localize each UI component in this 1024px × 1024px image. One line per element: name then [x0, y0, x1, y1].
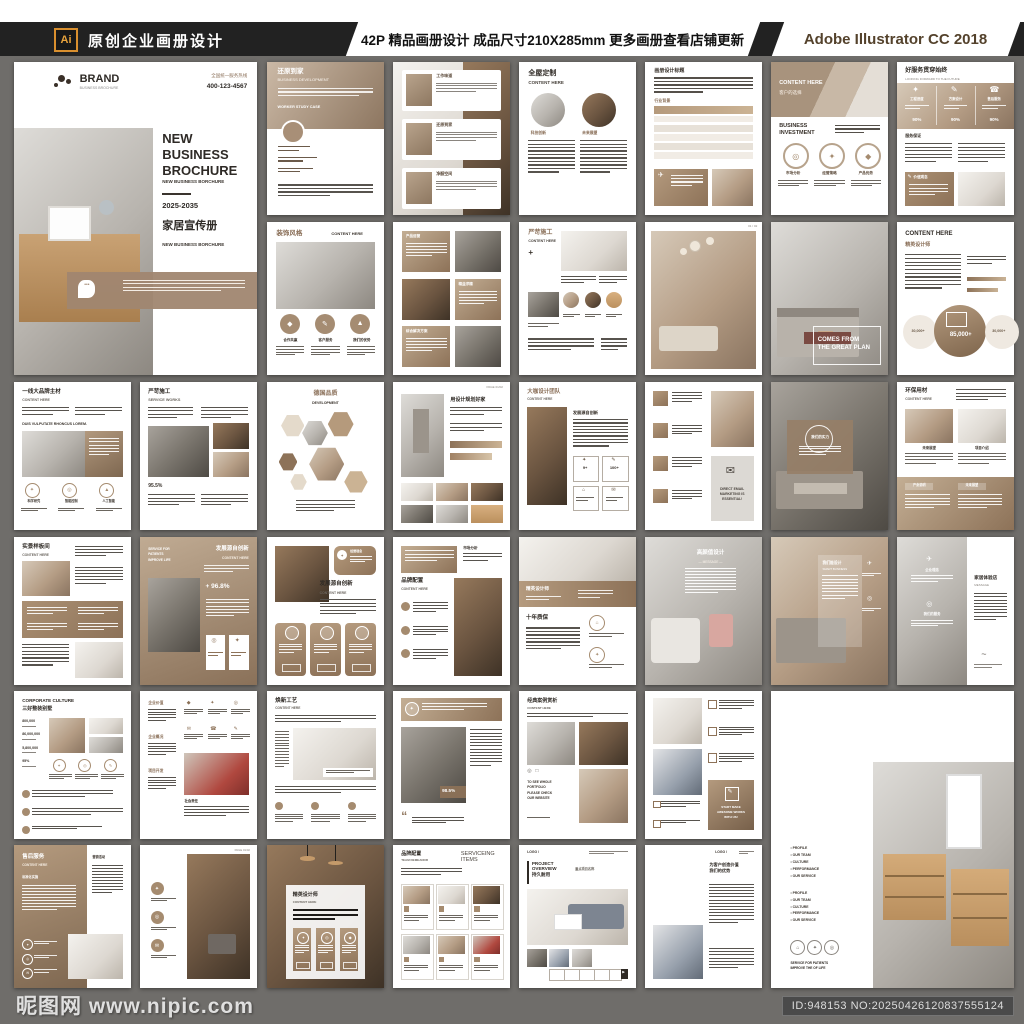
stat-value: 98.5%	[442, 788, 465, 794]
text-lines-placeholder	[208, 652, 223, 657]
text-label: SERVICE FOR PATIENTS IMPROVE THE OF LIFE	[790, 961, 887, 971]
text-lines-placeholder	[413, 626, 448, 637]
photo-placeholder	[187, 854, 250, 980]
decor-block	[654, 125, 752, 132]
text-lines-placeholder	[822, 575, 857, 601]
text-label: CONTENT HERE	[527, 707, 574, 711]
decor-circle: ◎	[824, 940, 839, 955]
text-lines-placeholder	[563, 314, 579, 319]
text-lines-placeholder	[22, 885, 76, 912]
text-lines-placeholder	[34, 941, 57, 945]
text-lines-placeholder	[295, 945, 309, 955]
decor-circle	[401, 602, 410, 611]
page-title: 发展源自创新	[320, 581, 376, 588]
text-label: DIRECT EMAIL MARKETING IS ESSENTIAL!	[713, 487, 752, 502]
text-lines-placeholder	[275, 715, 376, 725]
text-lines-placeholder	[406, 243, 447, 258]
decor-block	[282, 664, 300, 672]
text-lines-placeholder	[958, 494, 1002, 510]
icon: ✦	[210, 701, 214, 706]
decor-circle	[58, 75, 65, 82]
text-lines-placeholder	[208, 734, 227, 741]
text-lines-placeholder	[672, 490, 702, 501]
text-label: CONTENT HERE	[22, 398, 81, 402]
photo-placeholder	[276, 242, 374, 309]
photo-placeholder	[712, 169, 753, 206]
text-lines-placeholder	[311, 346, 339, 357]
text-lines-placeholder	[956, 389, 1006, 402]
watermark: 昵图网 www.nipic.com	[16, 990, 254, 1020]
decor-block	[936, 86, 937, 124]
text-lines-placeholder	[22, 752, 43, 755]
decor-block	[951, 869, 1009, 946]
photo-placeholder	[89, 737, 123, 753]
text-lines-placeholder	[818, 331, 841, 334]
text-lines-placeholder	[528, 323, 558, 329]
decor-block	[439, 906, 445, 912]
text-label: 产品优势	[851, 171, 881, 175]
text-label: CONTENT HERE	[181, 556, 249, 560]
decor-block	[296, 962, 310, 969]
text-label: 重点项目名称	[575, 868, 612, 872]
icon: ◎	[234, 701, 238, 706]
page-title: 十年质保	[526, 615, 573, 622]
page-ten-year-warranty: 精英设计师十年质保⌂✦	[519, 537, 636, 685]
text-label: NEW BUSINESS BORCHURE	[162, 242, 252, 247]
decor-block	[328, 412, 354, 437]
text-label: 未来展望	[958, 484, 986, 488]
decor-circle	[585, 292, 601, 308]
text-label: CONTENT HERE	[275, 707, 322, 711]
text-lines-placeholder	[672, 392, 702, 403]
decor-circle	[355, 626, 369, 640]
photo-placeholder	[401, 483, 433, 502]
text-label: TEAM DEMEANOR	[401, 859, 454, 863]
decor-circle: ✎	[315, 314, 335, 334]
text-label: CONTENT HERE	[22, 864, 78, 868]
text-lines-placeholder	[32, 790, 114, 798]
page-title: 品牌配置	[401, 578, 448, 585]
decor-circle	[563, 292, 579, 308]
text-lines-placeholder	[148, 777, 176, 791]
decor-block	[406, 172, 432, 204]
text-lines-placeholder	[34, 955, 57, 959]
page-company-profile: 企业价值企业概况项目开发◆✦◎✉☎✎社会责任	[140, 691, 257, 839]
text-lines-placeholder	[578, 590, 613, 600]
decor-circle: ◆	[344, 932, 356, 944]
decor-circle: ✦	[53, 759, 66, 772]
decor-circle: ◎	[78, 759, 91, 772]
decor-block	[208, 934, 236, 954]
decor-block	[406, 74, 432, 106]
text-lines-placeholder	[528, 140, 575, 175]
text-lines-placeholder	[672, 457, 702, 468]
decor-block	[554, 914, 582, 930]
page-title: 家居体验店	[974, 575, 1009, 581]
page-title: 全屋定制	[528, 70, 598, 78]
icon: ✦	[235, 638, 240, 644]
text-lines-placeholder	[672, 425, 702, 436]
decor-block	[654, 152, 752, 159]
page-cover: BRANDBUSINESS BROCHURE全国统一服务热线400-123-45…	[14, 62, 257, 375]
text-label: 客户服务	[311, 338, 339, 342]
text-lines-placeholder	[470, 729, 502, 767]
text-label: CONTENT HERE	[331, 232, 375, 237]
text-lines-placeholder	[778, 180, 808, 188]
decor-block	[162, 193, 191, 195]
text-label: 发展源自创新	[573, 410, 620, 415]
text-lines-placeholder	[22, 766, 43, 769]
decor-circle: ◆	[280, 314, 300, 334]
watermark-site-url: www.nipic.com	[89, 995, 254, 1018]
text-lines-placeholder	[413, 649, 448, 660]
page-product-ops-grid: 产品运营精益求精综合解决方案	[393, 222, 510, 375]
text-lines-placeholder	[436, 83, 497, 94]
text-lines-placeholder	[561, 276, 596, 286]
pen-icon: ✎	[908, 175, 912, 180]
text-lines-placeholder	[589, 664, 624, 670]
photo-placeholder	[401, 505, 433, 524]
text-lines-placeholder	[314, 644, 337, 655]
text-label: CONTENT HERE	[905, 397, 952, 401]
text-lines-placeholder	[75, 774, 98, 781]
icon: ✦	[582, 458, 586, 463]
decor-circle: ✉	[151, 939, 164, 952]
text-label: 企业概况	[148, 735, 178, 740]
page-whole-house-custom: 全屋定制CONTENT HERE科技创新未来展望	[519, 62, 636, 215]
text-label: 行业背景	[654, 99, 701, 104]
text-lines-placeholder	[401, 868, 462, 878]
page-corporate-culture: CORPORATE CULTURE三好整装别墅800,00086,000,000…	[14, 691, 131, 839]
decor-circle	[66, 79, 71, 84]
page-german-quality: 德国品质DEVELOPMENT	[267, 382, 384, 530]
text-label: 产业说明	[905, 484, 933, 488]
photo-placeholder	[958, 409, 1006, 443]
decor-circle: ◎	[62, 483, 77, 498]
text-label: DUIS VULPUTATE RHONCUS LOREM.	[22, 422, 123, 426]
text-lines-placeholder	[75, 567, 123, 586]
decor-circle: ◎	[151, 911, 164, 924]
text-label: 未来展望	[905, 446, 953, 450]
text-lines-placeholder	[589, 851, 628, 855]
text-label: 我们的服务	[911, 612, 953, 616]
page-innovation-photo: ✦经营理念发展源自创新CONTENT HERE	[267, 537, 384, 685]
screen-icon	[946, 312, 967, 326]
page-title: 焕新工艺	[275, 698, 322, 705]
page-title: 售后服务	[22, 854, 75, 861]
page-title-en: SERVICEING ITEMS	[461, 851, 503, 864]
text-lines-placeholder	[739, 851, 754, 855]
text-lines-placeholder	[719, 727, 754, 737]
text-label: 企业价值	[148, 701, 178, 706]
decor-circle: ◎	[22, 954, 33, 965]
plane-icon: ✈	[658, 172, 664, 179]
photo-placeholder	[438, 886, 465, 905]
decor-block	[343, 962, 357, 969]
decor-circle	[22, 808, 30, 816]
text-lines-placeholder	[974, 593, 1007, 622]
text-lines-placeholder	[151, 927, 177, 931]
decor-circle	[22, 790, 30, 798]
grid-label: 综合解决方案	[406, 329, 447, 333]
text-lines-placeholder	[436, 181, 497, 192]
page-create-value: LOGO /为客户创造价值 我们的优势	[645, 845, 762, 988]
photo-placeholder	[711, 391, 754, 447]
text-lines-placeholder	[22, 407, 69, 417]
decor-block	[883, 854, 946, 919]
image-id-badge: ID:948153 NO:20250426120837555124	[782, 996, 1014, 1016]
decor-circle	[606, 292, 622, 308]
decor-block	[290, 474, 306, 490]
page-elite-designers: CONTENT HERE精英设计师30,000+85,000+30,000+	[897, 222, 1014, 375]
text-lines-placeholder	[958, 143, 1005, 164]
text-lines-placeholder	[862, 573, 881, 578]
icon: ▶	[622, 971, 625, 975]
photo-placeholder	[471, 483, 503, 502]
photo-placeholder	[905, 409, 953, 443]
stat-bar	[967, 288, 997, 292]
decor-block	[328, 861, 343, 865]
decor-circle	[320, 626, 334, 640]
text-lines-placeholder	[350, 556, 372, 563]
decor-circle: ✦	[819, 143, 845, 169]
text-lines-placeholder	[436, 132, 497, 143]
text-label: SERVICE WORKS	[148, 398, 207, 403]
text-lines-placeholder	[671, 175, 704, 187]
text-label: CONTENT HERE	[320, 591, 367, 595]
decor-block	[777, 308, 859, 317]
text-lines-placeholder	[22, 644, 69, 668]
photo-placeholder	[403, 936, 430, 955]
text-label: DEVELOPMENT	[290, 401, 360, 405]
decor-block	[708, 700, 717, 709]
decor-block	[653, 801, 661, 809]
decor-circle: ⌂	[790, 940, 805, 955]
text-lines-placeholder	[405, 550, 454, 563]
decor-block	[653, 489, 668, 504]
text-lines-placeholder	[318, 945, 332, 955]
stat-bar	[967, 277, 1006, 281]
overlay-title: 我们的实力	[801, 435, 838, 439]
mail-icon: ✉	[726, 466, 735, 477]
photo-placeholder	[653, 925, 703, 979]
cover-subtitle: NEW BUSINESS BORCHURE	[162, 179, 252, 184]
photo-placeholder	[519, 537, 636, 581]
cover-years: 2025-2035	[162, 201, 235, 210]
grid-label: 精益求精	[459, 282, 498, 286]
grid-label: 产品运营	[406, 234, 447, 238]
decor-block	[653, 391, 668, 406]
page-experience-store: ✈企业理念◎我们的服务家居体验店MESSAGE~	[897, 537, 1014, 685]
text-label: 科学研究	[21, 500, 47, 504]
text-lines-placeholder	[75, 546, 123, 559]
photo-placeholder	[653, 698, 702, 744]
text-label: 营销活动	[92, 856, 125, 860]
text-lines-placeholder	[206, 599, 249, 618]
text-label: 经营策略	[814, 171, 844, 175]
icon: ◎	[926, 601, 932, 608]
text-lines-placeholder	[22, 726, 43, 729]
photo-placeholder	[455, 326, 501, 367]
text-lines-placeholder	[148, 743, 176, 757]
text-lines-placeholder	[406, 338, 447, 353]
text-lines-placeholder	[661, 801, 700, 809]
text-lines-placeholder	[719, 753, 754, 763]
decor-block	[659, 326, 718, 350]
logo-label: LOGO /	[527, 850, 550, 854]
text-lines-placeholder	[709, 884, 753, 925]
decor-block	[549, 969, 621, 981]
metric-value: 90%	[902, 117, 932, 122]
page-title: CORPORATE CULTURE	[22, 698, 116, 704]
text-lines-placeholder	[342, 945, 356, 955]
page-number: PAGE 01/02	[215, 849, 250, 852]
text-lines-placeholder	[958, 453, 1006, 466]
text-label: 项目开发	[148, 769, 178, 774]
text-lines-placeholder	[799, 446, 841, 457]
bullet-list: • PROFILE • OUR TEAM • CULTURE • PERFORM…	[790, 845, 863, 879]
decor-block	[654, 143, 752, 150]
text-lines-placeholder	[278, 88, 374, 98]
icon: ◎	[867, 596, 872, 602]
decor-block	[279, 453, 298, 471]
decor-block	[404, 957, 410, 963]
text-lines-placeholder	[528, 338, 594, 352]
bullet-list: • PROFILE • OUR TEAM • CULTURE • PERFORM…	[790, 890, 863, 924]
photo-placeholder	[213, 423, 249, 448]
text-label: MESSAGE	[974, 584, 1007, 588]
plane-icon: ✈	[926, 556, 932, 563]
poster-canvas: Ai 原创企业画册设计 42P 精品画册设计 成品尺寸210X285mm 更多画…	[0, 0, 1024, 1024]
card-title: 工作味道	[436, 74, 483, 79]
decor-block	[654, 106, 752, 114]
page-smart-business: 我们能设计SMART BUSINESS✈◎	[771, 537, 888, 685]
decor-block	[352, 664, 370, 672]
picture-frame	[946, 774, 982, 849]
text-lines-placeholder	[851, 180, 881, 188]
text-lines-placeholder	[601, 338, 627, 352]
text-lines-placeholder	[293, 909, 359, 923]
text-lines-placeholder	[463, 553, 502, 563]
cover-title: NEW BUSINESS BROCHURE	[162, 131, 252, 180]
text-lines-placeholder	[944, 105, 967, 111]
text-lines-placeholder	[32, 826, 102, 832]
metric-value: 90%	[940, 117, 970, 122]
page-title: 还原到家	[278, 68, 348, 76]
text-lines-placeholder	[123, 280, 245, 294]
page-title: 装饰风格	[276, 230, 323, 238]
page-start-make: ✎START MAKE AWESOME WORKS WITH US!	[645, 691, 762, 839]
text-lines-placeholder	[27, 623, 67, 633]
text-label: CONTENT HERE	[401, 587, 448, 591]
decor-block	[953, 917, 1006, 919]
decor-circle	[311, 802, 319, 810]
text-lines-placeholder	[905, 254, 961, 291]
page-title: 德国品质	[290, 391, 360, 398]
text-lines-placeholder	[311, 814, 339, 823]
text-lines-placeholder	[231, 709, 250, 716]
page-closet-cards: 工作味道还原到家净醛空间	[393, 62, 510, 215]
photo-placeholder	[527, 949, 547, 966]
text-lines-placeholder	[573, 419, 628, 449]
decor-circle: ◎	[321, 932, 333, 944]
decor-block	[474, 906, 480, 912]
text-lines-placeholder	[905, 453, 953, 466]
decor-circle: ✦	[405, 702, 419, 716]
page-brand-config: 市场分析品牌配置CONTENT HERE	[393, 537, 510, 685]
photo-placeholder	[402, 279, 450, 320]
signature: ~	[981, 649, 1004, 660]
page-new-craft: 焕新工艺CONTENT HERE	[267, 691, 384, 839]
text-lines-placeholder	[78, 623, 118, 633]
photo-placeholder	[454, 578, 502, 676]
text-lines-placeholder	[27, 607, 67, 617]
text-lines-placeholder	[22, 739, 43, 742]
page-title: 精英设计师	[293, 892, 340, 898]
text-lines-placeholder	[835, 125, 879, 135]
text-lines-placeholder	[148, 494, 195, 507]
text-label: SMART BUSINESS	[822, 568, 859, 571]
text-label: CONTENT HERE	[293, 901, 340, 905]
page-title: CONTENT HERE	[905, 231, 993, 238]
text-lines-placeholder	[527, 713, 628, 719]
text-label: 科技创新	[531, 131, 566, 136]
text-label: 方案设计	[940, 97, 970, 101]
text-lines-placeholder	[89, 438, 119, 457]
decor-circle	[281, 120, 305, 144]
stat-value: + 96.8%	[206, 583, 249, 591]
icon: ◎	[527, 769, 531, 774]
stat-bar	[450, 441, 501, 448]
decor-block	[654, 134, 752, 141]
decor-circle: ▲	[350, 314, 370, 334]
text-label: •••	[78, 282, 95, 288]
text-lines-placeholder	[21, 508, 47, 513]
photo-placeholder	[455, 231, 501, 272]
page-strict-build: 严苛施工CONTENT HERE+	[519, 222, 636, 375]
text-lines-placeholder	[709, 948, 753, 970]
quote-mark: “	[401, 809, 410, 823]
plane-icon: ✈	[867, 561, 872, 567]
page-number: 01 / 02	[727, 225, 757, 229]
icon: ⌂	[582, 488, 585, 493]
stat-value: 85,000+	[936, 332, 986, 339]
page-design-team: 大咖设计团队CONTENT HERE发展源自创新✦9+✎100+⌂✉	[519, 382, 636, 530]
text-label: 客户的选择	[779, 90, 849, 95]
text-lines-placeholder	[439, 915, 464, 922]
page-strength-bedroom: 我们的实力	[771, 382, 888, 530]
text-lines-placeholder	[606, 497, 624, 501]
text-lines-placeholder	[526, 596, 561, 602]
decor-block	[317, 664, 335, 672]
page-title: 严苛施工	[148, 389, 195, 396]
text-lines-placeholder	[909, 184, 949, 197]
text-lines-placeholder	[75, 407, 122, 417]
text-lines-placeholder	[347, 346, 375, 357]
text-lines-placeholder	[527, 817, 562, 820]
page-title: 品牌配置	[401, 851, 448, 857]
photo-placeholder	[653, 749, 702, 795]
progress-icon: ✦	[912, 86, 919, 94]
text-lines-placeholder	[576, 497, 594, 501]
icon: ◎	[211, 638, 216, 644]
photo-placeholder	[436, 505, 468, 524]
icon: ✉	[611, 488, 615, 493]
text-lines-placeholder	[349, 644, 372, 655]
design-icon: ✎	[951, 86, 958, 94]
text-lines-placeholder	[450, 407, 501, 417]
card-title: 还原到家	[436, 123, 483, 128]
